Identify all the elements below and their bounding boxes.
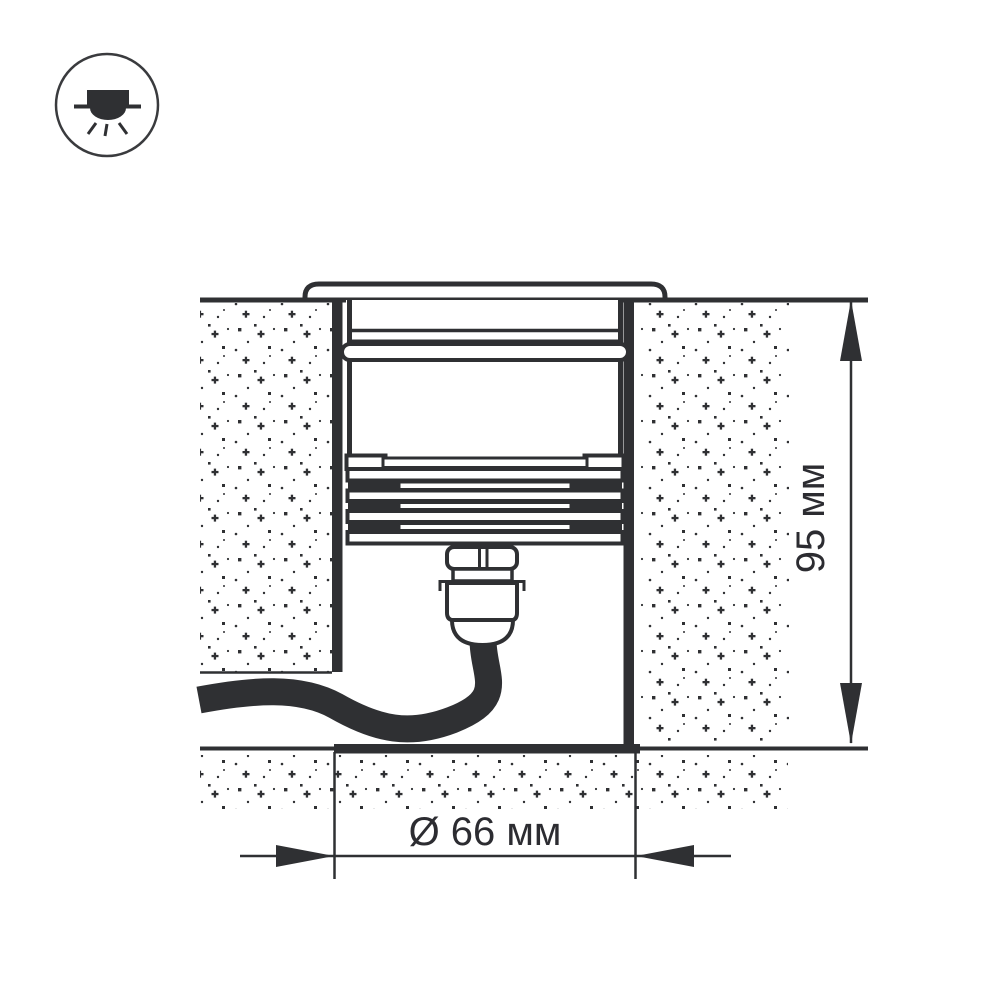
gasket-ring	[342, 344, 628, 360]
dimension-height: 95 мм	[789, 300, 862, 744]
drawing-page: Ø 66 мм 95 мм	[0, 0, 1000, 1000]
fixture-body	[342, 300, 628, 470]
ground-texture-bottom	[200, 755, 788, 809]
body-cavity	[346, 300, 622, 458]
recessed-downlight-icon	[56, 54, 158, 156]
fin-foot-left	[347, 456, 386, 470]
pit-bottom	[200, 744, 868, 754]
fin-inset-2	[399, 503, 571, 510]
fin-wide-2	[348, 491, 623, 502]
fin-wide-4	[348, 532, 623, 544]
gland-body	[447, 583, 517, 621]
fin-inset-3	[399, 524, 571, 531]
ground-texture-right	[641, 303, 789, 741]
dimension-diameter-label: Ø 66 мм	[409, 810, 562, 854]
icon-fixture-body	[87, 90, 129, 106]
heatsink-fins	[347, 456, 624, 544]
pit-right-wall	[624, 300, 635, 745]
fin-inset-1	[399, 482, 571, 490]
gland-dome	[452, 620, 513, 645]
cable-gland	[440, 547, 524, 645]
arrowhead-left	[636, 845, 694, 867]
fin-wide-1	[348, 469, 623, 481]
dimension-height-label: 95 мм	[789, 463, 833, 574]
fin-wide-3	[348, 511, 623, 522]
fin-foot-right	[585, 456, 624, 470]
arrowhead-down	[840, 683, 862, 744]
technical-drawing-svg: Ø 66 мм 95 мм	[0, 0, 1000, 1000]
arrowhead-right	[276, 845, 334, 867]
gland-nut	[447, 547, 517, 569]
fin-inset-0	[383, 458, 587, 468]
ground-texture-left	[200, 303, 332, 672]
gland-neck	[453, 569, 512, 581]
arrowhead-up	[840, 300, 862, 361]
pit-floor	[334, 744, 640, 754]
